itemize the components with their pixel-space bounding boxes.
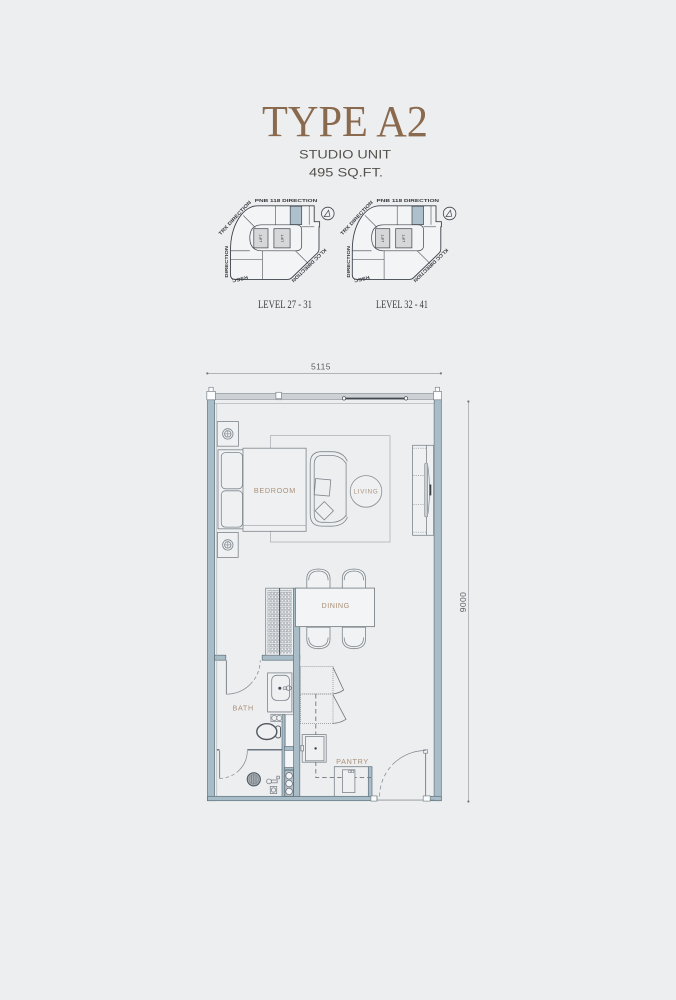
svg-text:LEVEL 27 - 31: LEVEL 27 - 31	[258, 297, 312, 311]
svg-text:495 SQ.FT.: 495 SQ.FT.	[309, 166, 383, 180]
svg-text:LIVING: LIVING	[353, 489, 378, 496]
svg-text:LIFT: LIFT	[280, 234, 284, 242]
svg-text:TYPE A2: TYPE A2	[262, 97, 428, 146]
svg-text:5115: 5115	[311, 362, 331, 372]
svg-text:LIFT: LIFT	[259, 234, 263, 242]
svg-text:PANTRY: PANTRY	[336, 757, 369, 766]
svg-text:BEDROOM: BEDROOM	[254, 486, 296, 495]
svg-text:BATH: BATH	[232, 704, 253, 713]
svg-text:9000: 9000	[458, 592, 468, 613]
svg-text:LEVEL 32 - 41: LEVEL 32 - 41	[376, 297, 428, 311]
svg-text:PNB 118 DIRECTION: PNB 118 DIRECTION	[255, 198, 318, 204]
svg-text:DIRECTION: DIRECTION	[224, 245, 230, 277]
svg-text:STUDIO UNIT: STUDIO UNIT	[299, 148, 392, 162]
svg-text:DINING: DINING	[322, 601, 350, 610]
